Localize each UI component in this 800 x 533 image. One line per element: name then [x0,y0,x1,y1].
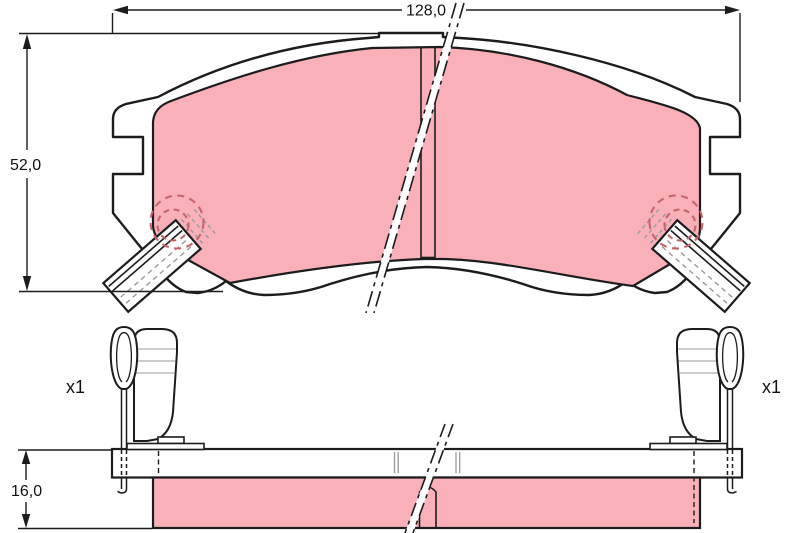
plan-view [103,3,749,313]
brake-pad-technical-drawing: 128,0 52,0 16,0 x1 x1 [0,0,800,533]
dimension-width-label: 128,0 [406,3,446,20]
side-view [111,327,743,533]
quantity-label-right: x1 [762,377,781,397]
dimension-height-label: 52,0 [10,157,41,174]
dimension-thickness-label: 16,0 [11,483,42,500]
quantity-label-left: x1 [66,377,85,397]
drawing-canvas: 128,0 52,0 16,0 x1 x1 [0,0,800,533]
